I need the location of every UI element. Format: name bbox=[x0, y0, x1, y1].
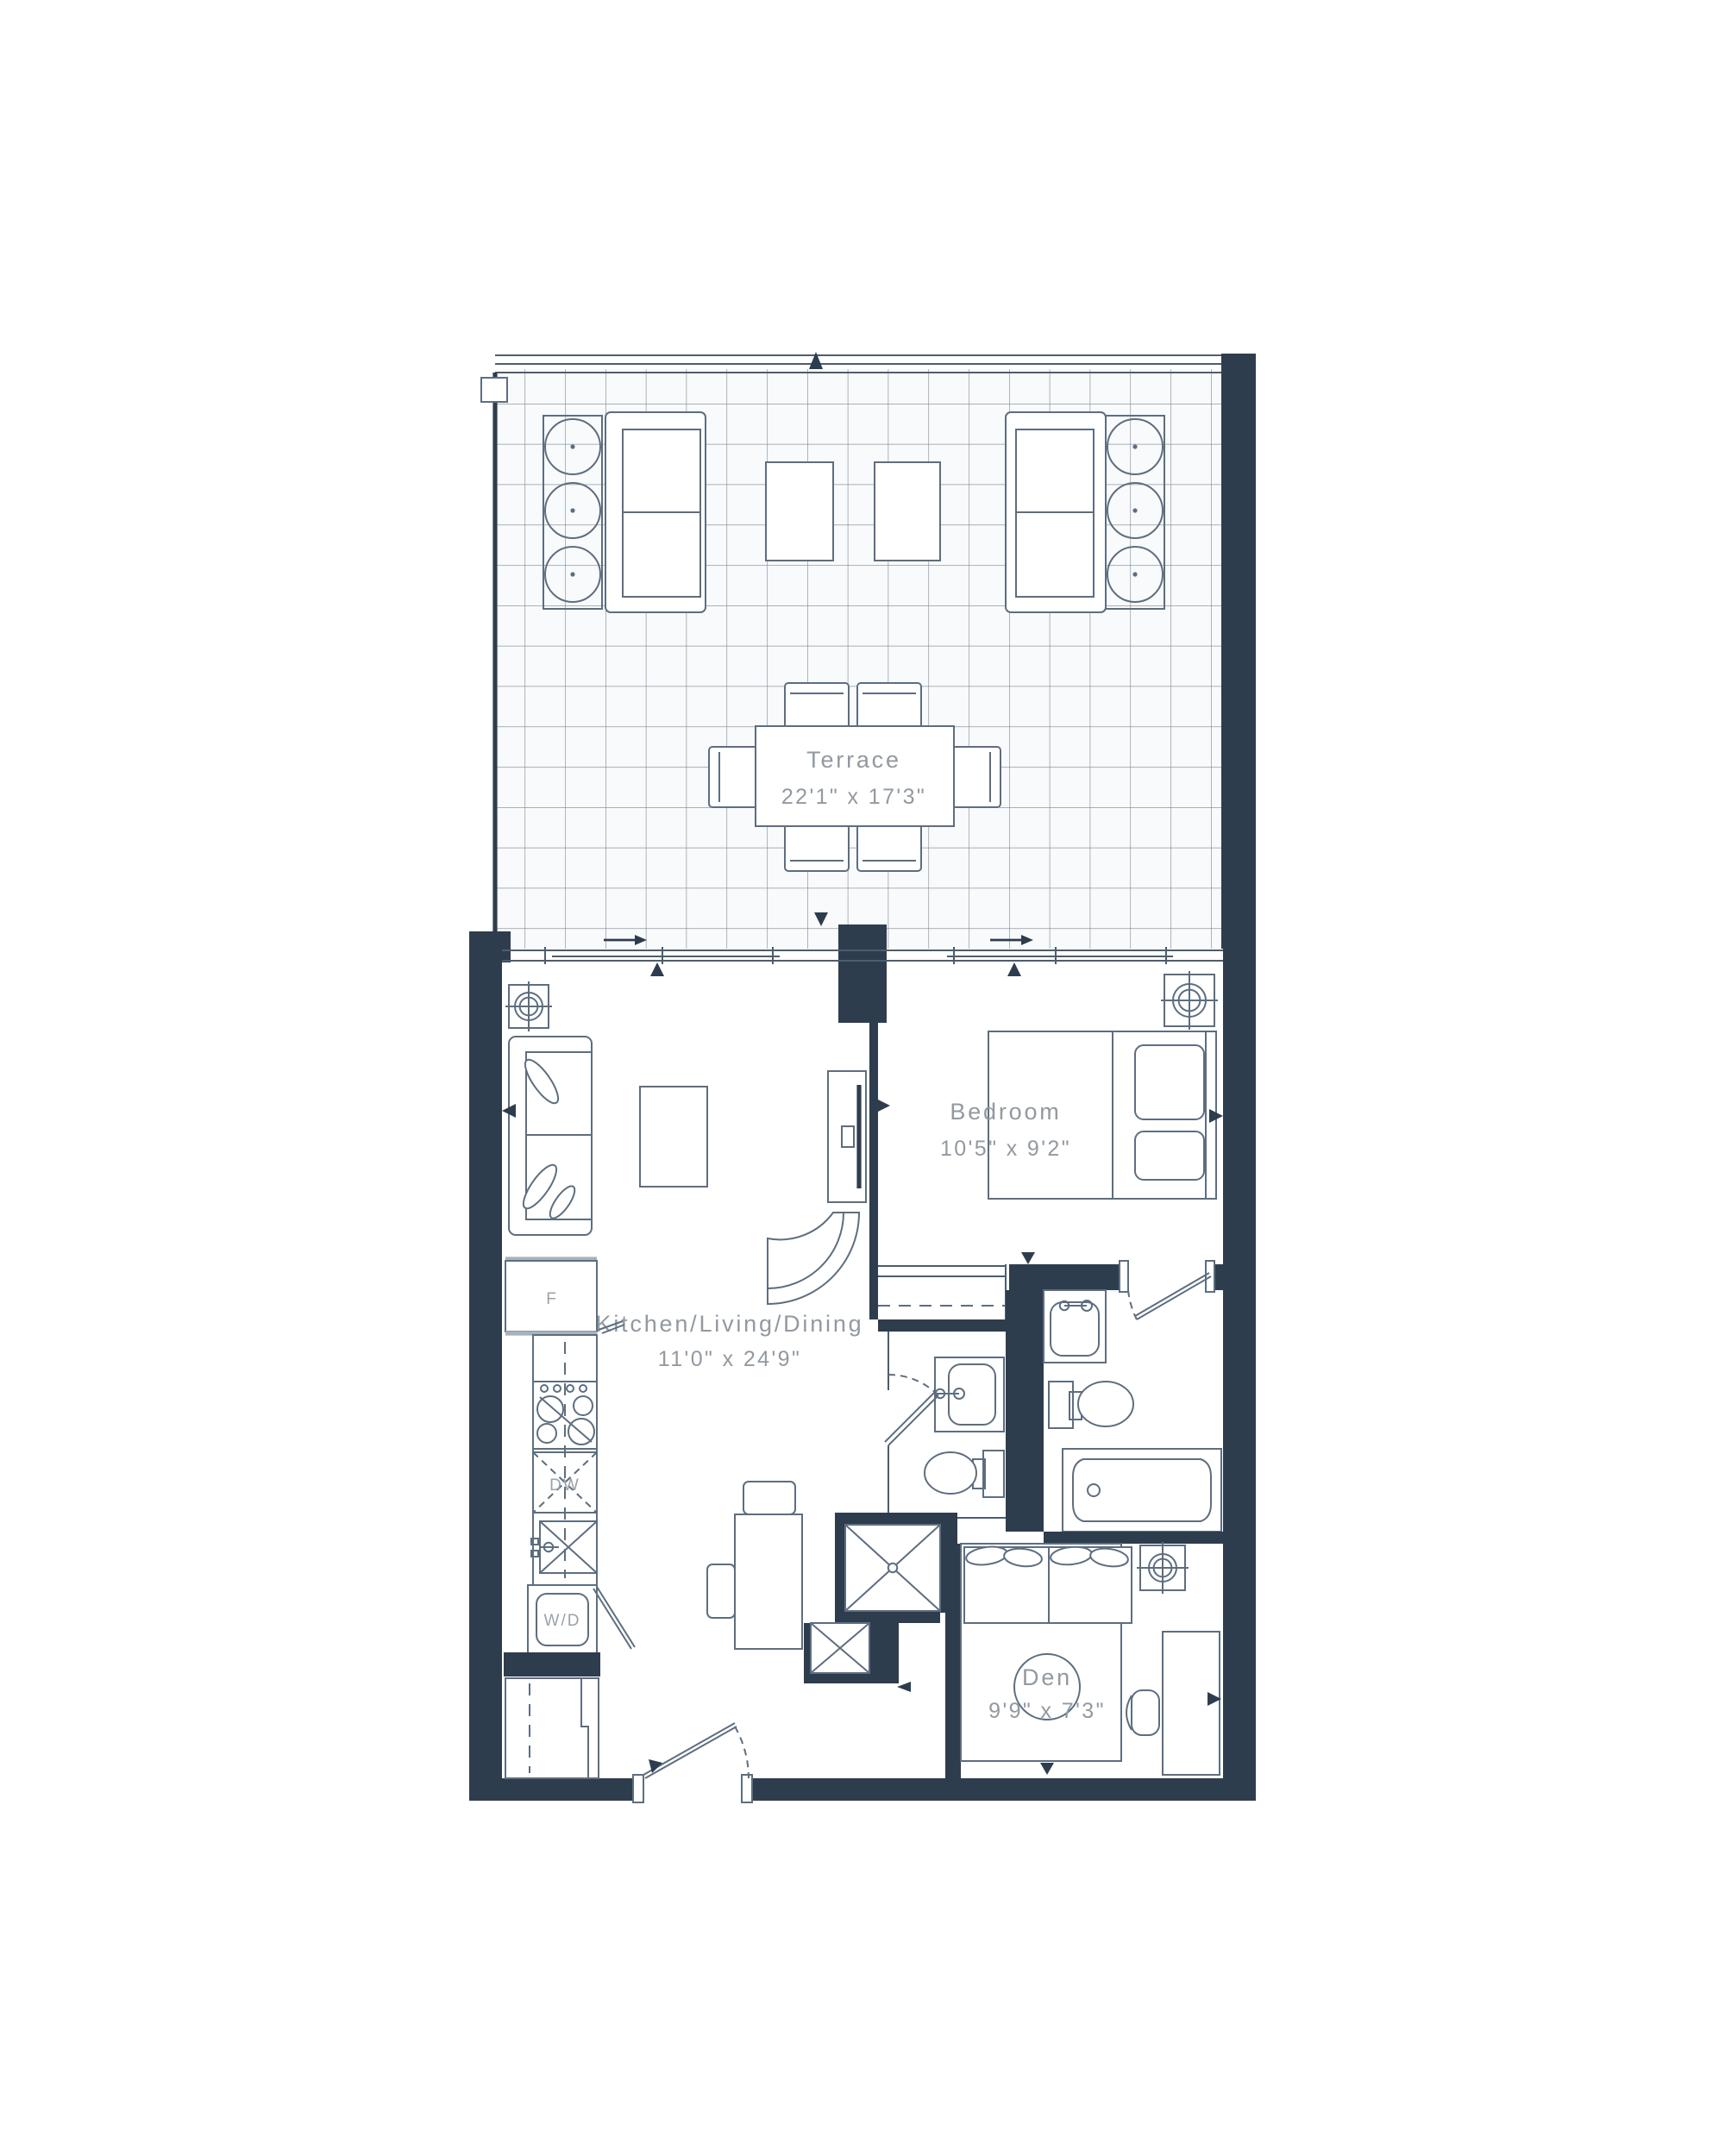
dishwasher-label: DW bbox=[549, 1476, 580, 1495]
den-room: Den 9'9" x 7'3" bbox=[945, 1542, 1221, 1778]
left-exterior-wall bbox=[469, 945, 502, 1801]
ceiling-light-icon bbox=[1161, 971, 1218, 1030]
powder-room bbox=[885, 1332, 1006, 1518]
den-dimensions: 9'9" x 7'3" bbox=[988, 1699, 1106, 1723]
washer-dryer-label: W/D bbox=[544, 1612, 581, 1630]
right-exterior-wall bbox=[1223, 945, 1256, 1801]
terrace-table bbox=[875, 462, 940, 561]
dining-chair bbox=[743, 1482, 795, 1514]
ceiling-light-icon bbox=[505, 981, 552, 1031]
coffee-table bbox=[640, 1087, 707, 1187]
bottom-wall bbox=[469, 1778, 633, 1801]
entry-door bbox=[633, 1723, 752, 1802]
armchair bbox=[768, 1213, 859, 1304]
bathrooms bbox=[878, 1290, 1223, 1544]
toilet bbox=[1049, 1382, 1133, 1428]
bedroom-room: Bedroom 10'5" x 9'2" bbox=[828, 971, 1223, 1319]
bathroom-dividing-wall bbox=[1006, 1290, 1044, 1532]
terrace-dimensions: 22'1" x 17'3" bbox=[781, 785, 926, 809]
living-bedroom-divider-wall bbox=[869, 1021, 878, 1319]
wall-segment bbox=[804, 1673, 899, 1683]
powder-room-door bbox=[885, 1375, 938, 1445]
marker-arrow-icon bbox=[1040, 1763, 1054, 1775]
ceiling-light-icon bbox=[1137, 1542, 1189, 1594]
den-label: Den bbox=[1022, 1664, 1072, 1690]
hall-closets bbox=[804, 1513, 957, 1692]
main-bathroom bbox=[1044, 1290, 1223, 1544]
terrace-left-sofa bbox=[605, 412, 706, 612]
bathtub bbox=[1063, 1449, 1221, 1532]
bedroom-wall bbox=[1009, 1264, 1123, 1290]
wall-segment bbox=[1044, 1532, 1223, 1544]
terrace-right-sofa bbox=[1006, 412, 1106, 612]
den-daybed bbox=[964, 1545, 1132, 1623]
terrace-right-wall bbox=[1221, 354, 1256, 949]
dining-table-interior bbox=[707, 1482, 802, 1649]
living-sofa bbox=[509, 1037, 592, 1235]
hall-closet bbox=[811, 1623, 869, 1673]
bottom-wall bbox=[752, 1778, 1256, 1801]
den-left-wall bbox=[945, 1544, 961, 1778]
tv-console bbox=[828, 1071, 866, 1202]
desk-chair bbox=[1126, 1690, 1159, 1735]
marker-arrow-icon bbox=[876, 1099, 890, 1112]
kitchen-living-dining-label: Kitchen/Living/Dining bbox=[596, 1311, 864, 1337]
bathroom-door bbox=[1128, 1273, 1211, 1319]
bedroom-closet bbox=[878, 1264, 1006, 1319]
terrace-label: Terrace bbox=[806, 747, 901, 773]
kitchen-living-dining-dimensions: 11'0" x 24'9" bbox=[658, 1347, 801, 1371]
door-direction-arrow-icon bbox=[1021, 1252, 1035, 1264]
dishwasher: DW bbox=[533, 1452, 597, 1513]
wall-segment bbox=[835, 1513, 940, 1525]
marker-arrow-icon bbox=[897, 1682, 911, 1692]
dining-chair bbox=[785, 824, 849, 871]
terrace-table bbox=[766, 462, 833, 561]
terrace-door-pillar bbox=[838, 924, 887, 1023]
dining-chair bbox=[785, 683, 849, 730]
dining-chair bbox=[952, 747, 1000, 807]
dining-chair bbox=[857, 824, 921, 871]
kitchen-appliance-run: F DW bbox=[504, 1259, 635, 1778]
bedroom-dimensions: 10'5" x 9'2" bbox=[940, 1137, 1071, 1161]
fridge-label: F bbox=[546, 1290, 558, 1308]
bedroom-label: Bedroom bbox=[950, 1099, 1061, 1125]
floor-plan-drawing: Terrace 22'1" x 17'3" bbox=[0, 0, 1725, 2156]
dining-chair bbox=[709, 747, 757, 807]
dining-table bbox=[735, 1514, 802, 1649]
floor-plan-page: Terrace 22'1" x 17'3" bbox=[0, 0, 1725, 2156]
washer-dryer: W/D bbox=[528, 1585, 635, 1654]
entry-closet bbox=[505, 1678, 599, 1778]
terrace-dining-table bbox=[756, 726, 954, 826]
wall-segment bbox=[845, 1611, 940, 1623]
bathroom-sink bbox=[935, 1357, 1004, 1432]
door-jamb bbox=[1120, 1261, 1128, 1292]
toilet bbox=[925, 1451, 1004, 1497]
wall-segment bbox=[504, 1652, 600, 1677]
railing-post bbox=[481, 378, 507, 402]
dining-chair bbox=[707, 1564, 735, 1618]
terrace-area: Terrace 22'1" x 17'3" bbox=[481, 352, 1256, 949]
dining-chair bbox=[857, 683, 921, 730]
bathroom-sink bbox=[1044, 1290, 1106, 1363]
linen-closet bbox=[845, 1525, 940, 1611]
